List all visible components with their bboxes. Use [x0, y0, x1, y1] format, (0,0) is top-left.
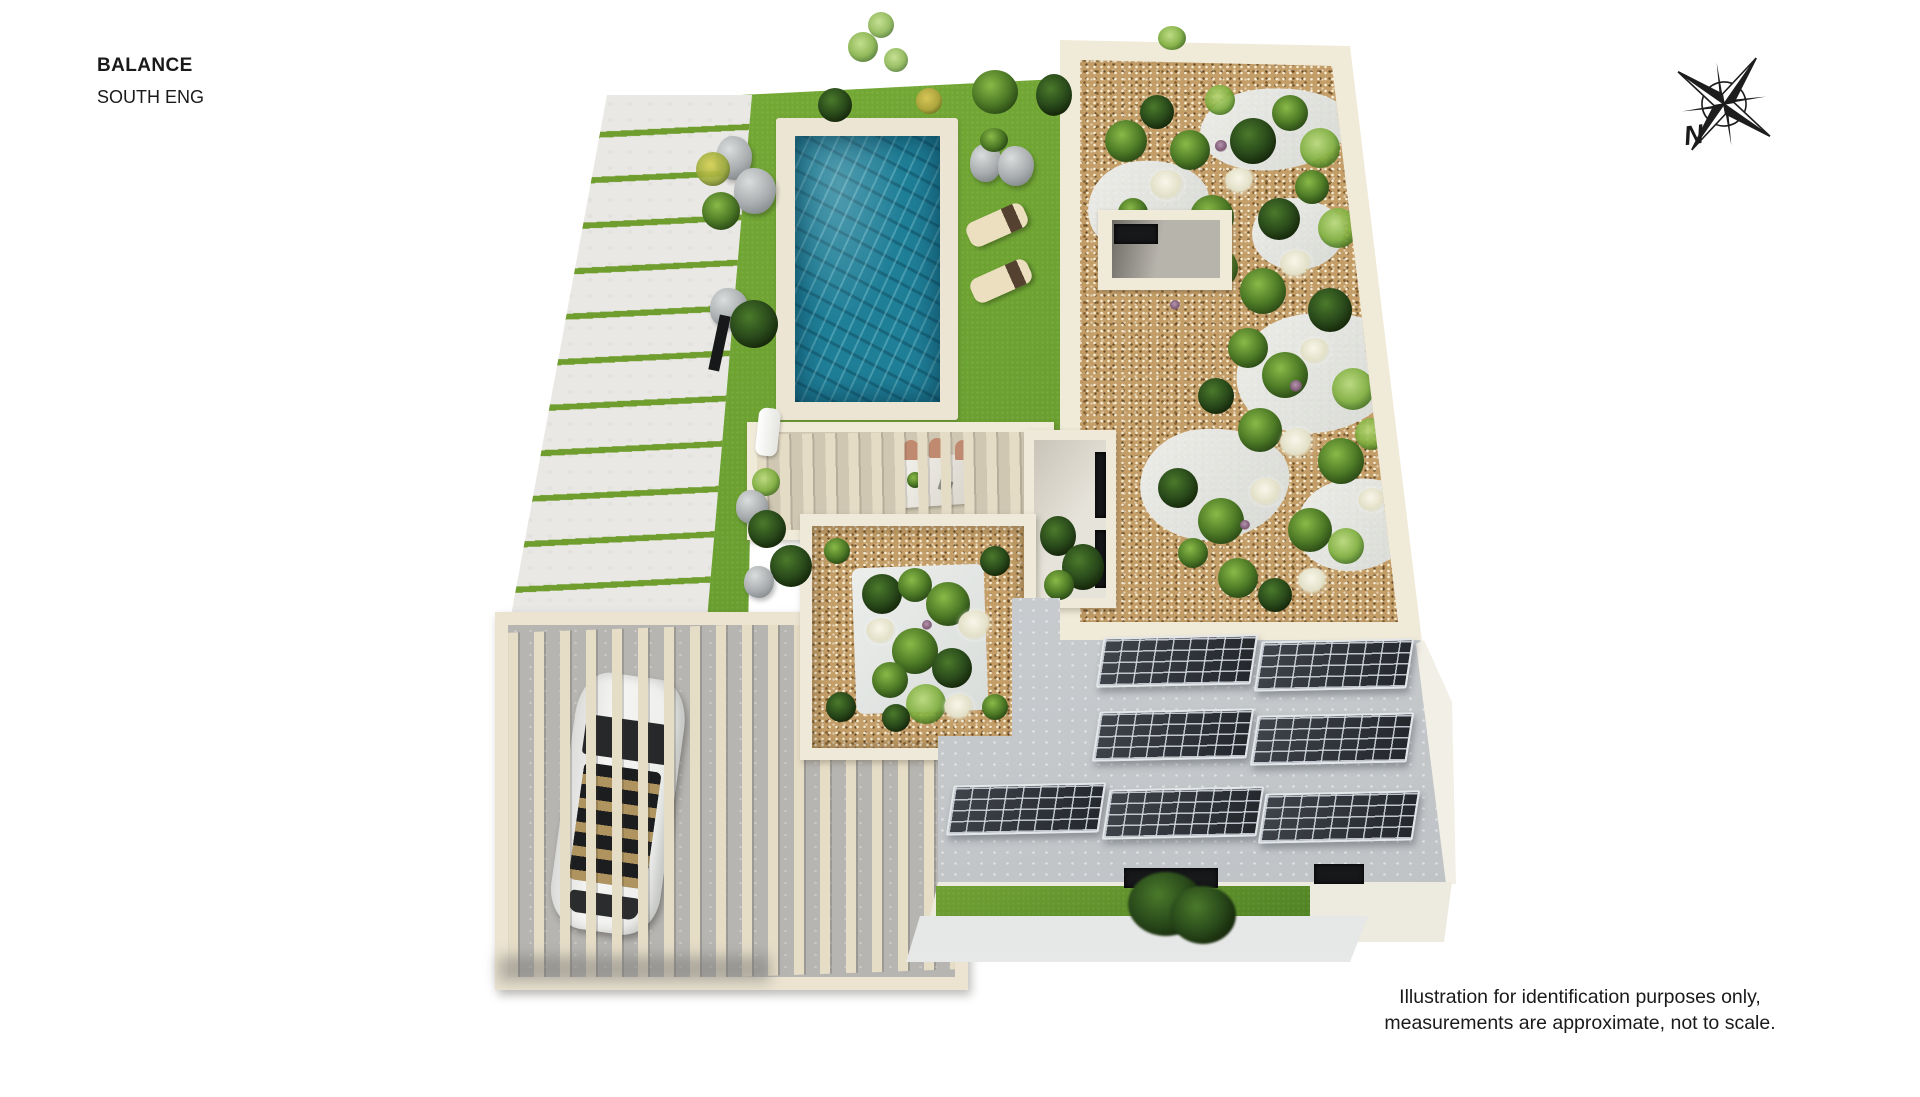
ground-lawn-strip: [936, 886, 1310, 916]
flower-cluster: [1300, 338, 1330, 364]
flower-cluster: [1358, 488, 1386, 512]
tree-canopy: [848, 32, 878, 62]
disclaimer-line-2: measurements are approximate, not to sca…: [1300, 1010, 1860, 1036]
lightwell-window: [1114, 224, 1158, 244]
lightwell-window: [1095, 452, 1106, 518]
plant: [1230, 118, 1276, 164]
plant: [916, 88, 942, 114]
flower-cluster: [1225, 168, 1255, 194]
tree-canopy: [1170, 886, 1236, 944]
flower-cluster: [1240, 520, 1250, 530]
plant: [1300, 128, 1340, 168]
palm-plant: [972, 70, 1018, 114]
page-subtitle: SOUTH ENG: [97, 87, 204, 108]
plant: [1328, 528, 1364, 564]
bush: [748, 510, 786, 548]
disclaimer-line-1: Illustration for identification purposes…: [1300, 984, 1860, 1010]
plant: [824, 538, 850, 564]
solar-panel: [1096, 634, 1258, 687]
plant: [1178, 538, 1208, 568]
solar-panel: [1250, 712, 1414, 765]
flower-cluster: [1280, 250, 1312, 278]
solar-panel: [946, 782, 1106, 835]
plant: [980, 546, 1010, 576]
compass-rose-icon: [1664, 44, 1784, 164]
plant: [1158, 468, 1198, 508]
plant: [1198, 498, 1244, 544]
plant: [1238, 408, 1282, 452]
plant: [818, 88, 852, 122]
plant: [882, 704, 910, 732]
plant: [1295, 170, 1329, 204]
boulder: [744, 566, 774, 598]
page-title: BALANCE: [97, 55, 193, 77]
plant: [1198, 378, 1234, 414]
flower-cluster: [922, 620, 932, 630]
plant: [862, 574, 902, 614]
solar-panel: [1258, 790, 1420, 843]
plant: [982, 694, 1008, 720]
plant: [1288, 508, 1332, 552]
solar-panel: [1092, 708, 1254, 761]
boulder: [734, 168, 776, 214]
flower-cluster: [1150, 170, 1184, 200]
plant: [1332, 368, 1374, 410]
flower-cluster: [958, 610, 992, 640]
ground-window: [1314, 864, 1364, 884]
plant: [980, 128, 1008, 152]
plant: [1272, 95, 1308, 131]
plant: [1140, 95, 1174, 129]
plant: [872, 662, 908, 698]
plant: [1228, 328, 1268, 368]
flower-cluster: [944, 694, 974, 720]
flower-cluster: [1250, 478, 1282, 506]
plant: [1044, 570, 1074, 600]
plant: [1205, 85, 1235, 115]
tree-canopy: [884, 48, 908, 72]
boulder: [998, 146, 1034, 186]
plant: [1262, 352, 1308, 398]
compass-north-label: N: [1682, 119, 1706, 152]
tree-canopy: [868, 12, 894, 38]
bush: [730, 300, 778, 348]
flower-cluster: [1298, 568, 1328, 594]
flower-cluster: [1170, 300, 1180, 310]
solar-panel: [1254, 638, 1414, 691]
plant: [1158, 26, 1186, 50]
site-plan-illustration: [0, 0, 1920, 1097]
bush: [696, 152, 730, 186]
plant: [1308, 288, 1352, 332]
solar-panel: [1102, 786, 1264, 839]
plant: [1105, 120, 1147, 162]
plant: [826, 692, 856, 722]
flower-cluster: [1215, 140, 1227, 152]
flower-cluster: [1290, 380, 1302, 392]
carport-shadow: [498, 956, 770, 982]
plant: [906, 684, 946, 724]
plant: [1170, 130, 1210, 170]
palm-plant: [1036, 74, 1072, 116]
bush: [770, 545, 812, 587]
flower-cluster: [866, 618, 896, 644]
disclaimer: Illustration for identification purposes…: [1300, 984, 1860, 1036]
plant: [932, 648, 972, 688]
plant: [1318, 438, 1364, 484]
architectural-plan-page: BALANCE SOUTH ENG N: [0, 0, 1920, 1097]
plant: [1258, 198, 1300, 240]
swimming-pool: [795, 136, 940, 402]
plant: [1240, 268, 1286, 314]
plant: [1218, 558, 1258, 598]
plant: [1258, 578, 1292, 612]
flower-cluster: [1280, 428, 1314, 458]
bush: [702, 192, 740, 230]
gravel-courtyard: [800, 514, 1036, 760]
